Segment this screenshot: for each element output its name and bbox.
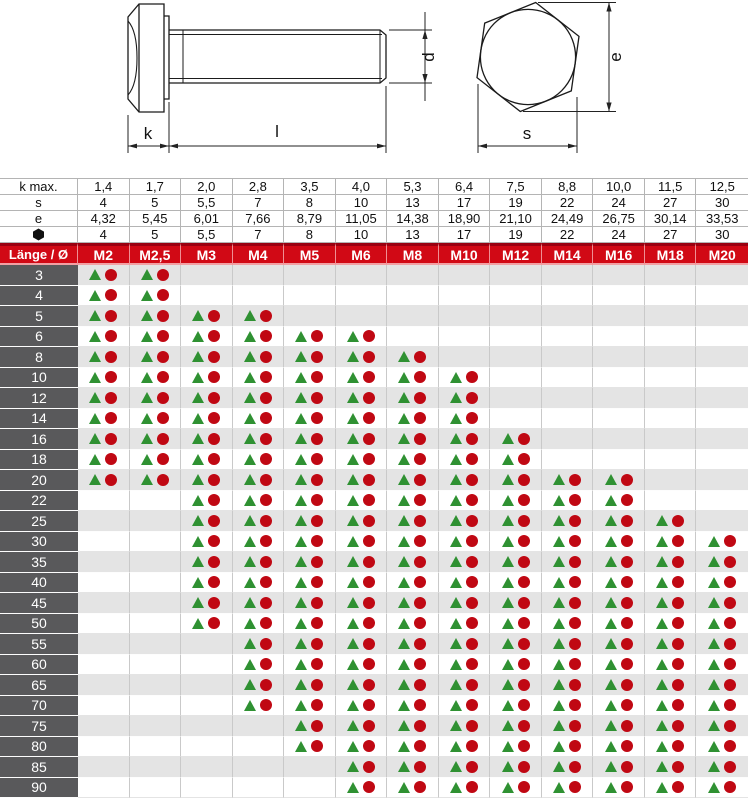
spec-value: 10,0 bbox=[593, 179, 645, 195]
availability-cell bbox=[130, 614, 182, 635]
circle-icon bbox=[621, 494, 633, 506]
circle-icon bbox=[414, 494, 426, 506]
availability-cell bbox=[387, 306, 439, 327]
availability-cell bbox=[233, 532, 285, 553]
availability-markers bbox=[502, 453, 530, 465]
availability-markers bbox=[502, 597, 530, 609]
triangle-icon bbox=[295, 638, 307, 649]
triangle-icon bbox=[141, 413, 153, 424]
availability-markers bbox=[295, 658, 323, 670]
length-label: 60 bbox=[0, 655, 78, 676]
availability-markers bbox=[244, 576, 272, 588]
availability-markers bbox=[553, 761, 581, 773]
availability-cell bbox=[593, 716, 645, 737]
bolt-head-front-view bbox=[477, 3, 579, 112]
circle-icon bbox=[518, 720, 530, 732]
spec-value: 10 bbox=[336, 195, 388, 211]
availability-markers bbox=[656, 658, 684, 670]
triangle-icon bbox=[502, 659, 514, 670]
availability-cell bbox=[542, 778, 594, 798]
spec-value: 24 bbox=[593, 195, 645, 211]
availability-cell bbox=[387, 409, 439, 430]
availability-cell bbox=[284, 306, 336, 327]
availability-cell bbox=[233, 409, 285, 430]
availability-cell bbox=[490, 470, 542, 491]
availability-markers bbox=[295, 720, 323, 732]
availability-markers bbox=[244, 371, 272, 383]
availability-markers bbox=[553, 617, 581, 629]
availability-markers bbox=[398, 781, 426, 793]
availability-markers bbox=[244, 597, 272, 609]
triangle-icon bbox=[244, 597, 256, 608]
availability-cell bbox=[593, 573, 645, 594]
circle-icon bbox=[672, 597, 684, 609]
availability-cell bbox=[696, 634, 748, 655]
availability-cell bbox=[593, 368, 645, 389]
availability-cell bbox=[284, 347, 336, 368]
circle-icon bbox=[621, 761, 633, 773]
length-label: 40 bbox=[0, 573, 78, 594]
triangle-icon bbox=[708, 700, 720, 711]
length-label: 22 bbox=[0, 491, 78, 512]
availability-cell bbox=[542, 593, 594, 614]
availability-cell bbox=[439, 265, 491, 286]
availability-cell bbox=[645, 429, 697, 450]
circle-icon bbox=[724, 658, 736, 670]
circle-icon bbox=[672, 679, 684, 691]
circle-icon bbox=[724, 740, 736, 752]
availability-cell bbox=[439, 286, 491, 307]
triangle-icon bbox=[347, 720, 359, 731]
availability-cell bbox=[490, 388, 542, 409]
availability-cell bbox=[593, 696, 645, 717]
availability-markers bbox=[450, 433, 478, 445]
availability-cell bbox=[593, 593, 645, 614]
availability-cell bbox=[233, 368, 285, 389]
spec-row-label bbox=[0, 227, 78, 243]
circle-icon bbox=[724, 535, 736, 547]
dimension-lines bbox=[128, 3, 616, 154]
circle-icon bbox=[363, 412, 375, 424]
availability-markers bbox=[605, 535, 633, 547]
availability-cell bbox=[336, 368, 388, 389]
availability-markers bbox=[605, 597, 633, 609]
availability-cell bbox=[387, 573, 439, 594]
availability-cell bbox=[490, 306, 542, 327]
availability-cell bbox=[696, 593, 748, 614]
availability-markers bbox=[347, 556, 375, 568]
length-label: 70 bbox=[0, 696, 78, 717]
availability-markers bbox=[656, 576, 684, 588]
spec-value: 30,14 bbox=[645, 211, 697, 227]
datasheet-page: k l d e s k max.1,41,72,02,83,54,05,36,4… bbox=[0, 0, 748, 798]
availability-cell bbox=[645, 532, 697, 553]
triangle-icon bbox=[605, 700, 617, 711]
triangle-icon bbox=[192, 597, 204, 608]
availability-cell bbox=[593, 778, 645, 798]
availability-cell bbox=[233, 593, 285, 614]
availability-markers bbox=[398, 617, 426, 629]
availability-cell bbox=[593, 614, 645, 635]
availability-cell bbox=[130, 778, 182, 798]
circle-icon bbox=[724, 617, 736, 629]
triangle-icon bbox=[708, 679, 720, 690]
triangle-icon bbox=[192, 515, 204, 526]
availability-markers bbox=[553, 740, 581, 752]
availability-cell bbox=[439, 696, 491, 717]
triangle-icon bbox=[553, 782, 565, 793]
circle-icon bbox=[208, 453, 220, 465]
availability-markers bbox=[502, 638, 530, 650]
availability-cell bbox=[336, 306, 388, 327]
triangle-icon bbox=[605, 597, 617, 608]
availability-cell bbox=[490, 716, 542, 737]
dim-label-e: e bbox=[606, 52, 625, 61]
availability-markers bbox=[244, 494, 272, 506]
availability-markers bbox=[605, 699, 633, 711]
spec-value: 11,05 bbox=[336, 211, 388, 227]
circle-icon bbox=[311, 494, 323, 506]
availability-cell bbox=[181, 778, 233, 798]
availability-cell bbox=[233, 778, 285, 798]
availability-cell bbox=[490, 532, 542, 553]
triangle-icon bbox=[450, 782, 462, 793]
circle-icon bbox=[569, 679, 581, 691]
circle-icon bbox=[311, 351, 323, 363]
availability-markers bbox=[244, 515, 272, 527]
availability-markers bbox=[450, 658, 478, 670]
availability-cell bbox=[696, 675, 748, 696]
circle-icon bbox=[260, 679, 272, 691]
triangle-icon bbox=[605, 618, 617, 629]
triangle-icon bbox=[295, 536, 307, 547]
availability-cell bbox=[233, 737, 285, 758]
availability-cell bbox=[593, 265, 645, 286]
triangle-icon bbox=[141, 331, 153, 342]
availability-cell bbox=[696, 552, 748, 573]
availability-cell bbox=[78, 347, 130, 368]
circle-icon bbox=[518, 515, 530, 527]
availability-cell bbox=[593, 327, 645, 348]
availability-cell bbox=[130, 655, 182, 676]
availability-cell bbox=[336, 511, 388, 532]
triangle-icon bbox=[450, 761, 462, 772]
triangle-icon bbox=[244, 679, 256, 690]
availability-markers bbox=[192, 453, 220, 465]
circle-icon bbox=[414, 699, 426, 711]
triangle-icon bbox=[605, 659, 617, 670]
triangle-icon bbox=[244, 638, 256, 649]
spec-value: 19 bbox=[490, 195, 542, 211]
availability-cell bbox=[439, 737, 491, 758]
availability-markers bbox=[347, 597, 375, 609]
circle-icon bbox=[414, 515, 426, 527]
spec-value: 6,01 bbox=[181, 211, 233, 227]
triangle-icon bbox=[295, 618, 307, 629]
availability-markers bbox=[553, 638, 581, 650]
circle-icon bbox=[208, 617, 220, 629]
availability-markers bbox=[553, 597, 581, 609]
availability-cell bbox=[490, 552, 542, 573]
triangle-icon bbox=[502, 556, 514, 567]
length-label: 10 bbox=[0, 368, 78, 389]
availability-markers bbox=[708, 617, 736, 629]
triangle-icon bbox=[450, 597, 462, 608]
triangle-icon bbox=[502, 433, 514, 444]
triangle-icon bbox=[605, 741, 617, 752]
availability-cell bbox=[696, 347, 748, 368]
availability-markers bbox=[605, 761, 633, 773]
triangle-icon bbox=[295, 474, 307, 485]
availability-markers bbox=[553, 658, 581, 670]
circle-icon bbox=[311, 658, 323, 670]
circle-icon bbox=[414, 556, 426, 568]
availability-cell bbox=[130, 450, 182, 471]
availability-cell bbox=[181, 388, 233, 409]
spec-value: 22 bbox=[542, 227, 594, 243]
availability-cell bbox=[542, 470, 594, 491]
circle-icon bbox=[569, 617, 581, 629]
availability-cell bbox=[593, 388, 645, 409]
spec-value: 4,0 bbox=[336, 179, 388, 195]
triangle-icon bbox=[347, 474, 359, 485]
availability-cell bbox=[233, 675, 285, 696]
availability-cell bbox=[593, 634, 645, 655]
availability-cell bbox=[439, 429, 491, 450]
triangle-icon bbox=[244, 454, 256, 465]
availability-markers bbox=[708, 781, 736, 793]
triangle-icon bbox=[450, 679, 462, 690]
availability-cell bbox=[284, 757, 336, 778]
triangle-icon bbox=[244, 495, 256, 506]
circle-icon bbox=[518, 617, 530, 629]
triangle-icon bbox=[89, 372, 101, 383]
triangle-icon bbox=[605, 679, 617, 690]
availability-cell bbox=[181, 655, 233, 676]
circle-icon bbox=[311, 330, 323, 342]
circle-icon bbox=[363, 535, 375, 547]
triangle-icon bbox=[553, 679, 565, 690]
triangle-icon bbox=[141, 290, 153, 301]
dim-label-k: k bbox=[144, 124, 153, 143]
availability-cell bbox=[490, 327, 542, 348]
availability-markers bbox=[192, 617, 220, 629]
availability-markers bbox=[192, 330, 220, 342]
availability-cell bbox=[336, 675, 388, 696]
availability-cell bbox=[387, 491, 439, 512]
availability-markers bbox=[295, 474, 323, 486]
availability-cell bbox=[387, 614, 439, 635]
circle-icon bbox=[621, 576, 633, 588]
availability-markers bbox=[450, 617, 478, 629]
circle-icon bbox=[466, 453, 478, 465]
availability-cell bbox=[645, 634, 697, 655]
availability-cell bbox=[490, 409, 542, 430]
triangle-icon bbox=[398, 761, 410, 772]
circle-icon bbox=[363, 371, 375, 383]
spec-value: 7,5 bbox=[490, 179, 542, 195]
circle-icon bbox=[414, 535, 426, 547]
triangle-icon bbox=[192, 351, 204, 362]
triangle-icon bbox=[553, 597, 565, 608]
circle-icon bbox=[569, 474, 581, 486]
triangle-icon bbox=[605, 474, 617, 485]
availability-cell bbox=[645, 593, 697, 614]
circle-icon bbox=[621, 699, 633, 711]
availability-cell bbox=[439, 532, 491, 553]
availability-cell bbox=[696, 470, 748, 491]
availability-cell bbox=[181, 470, 233, 491]
availability-cell bbox=[439, 634, 491, 655]
circle-icon bbox=[311, 515, 323, 527]
circle-icon bbox=[672, 617, 684, 629]
availability-cell bbox=[284, 429, 336, 450]
availability-cell bbox=[233, 573, 285, 594]
availability-cell bbox=[696, 696, 748, 717]
availability-markers bbox=[347, 781, 375, 793]
circle-icon bbox=[518, 494, 530, 506]
triangle-icon bbox=[398, 597, 410, 608]
triangle-icon bbox=[347, 536, 359, 547]
circle-icon bbox=[672, 658, 684, 670]
circle-icon bbox=[363, 720, 375, 732]
availability-cell bbox=[645, 778, 697, 798]
availability-cell bbox=[130, 388, 182, 409]
triangle-icon bbox=[605, 782, 617, 793]
availability-markers bbox=[502, 658, 530, 670]
length-label: 8 bbox=[0, 347, 78, 368]
circle-icon bbox=[105, 289, 117, 301]
circle-icon bbox=[518, 699, 530, 711]
circle-icon bbox=[208, 392, 220, 404]
circle-icon bbox=[311, 617, 323, 629]
spec-value: 26,75 bbox=[593, 211, 645, 227]
availability-cell bbox=[233, 429, 285, 450]
availability-cell bbox=[181, 265, 233, 286]
availability-cell bbox=[387, 511, 439, 532]
availability-cell bbox=[336, 696, 388, 717]
availability-cell bbox=[284, 470, 336, 491]
availability-cell bbox=[130, 634, 182, 655]
availability-markers bbox=[244, 453, 272, 465]
availability-cell bbox=[645, 470, 697, 491]
availability-markers bbox=[347, 535, 375, 547]
availability-cell bbox=[284, 696, 336, 717]
availability-markers bbox=[553, 720, 581, 732]
availability-markers bbox=[141, 453, 169, 465]
availability-markers bbox=[398, 576, 426, 588]
triangle-icon bbox=[398, 413, 410, 424]
circle-icon bbox=[311, 412, 323, 424]
triangle-icon bbox=[398, 556, 410, 567]
spec-value: 8 bbox=[284, 227, 336, 243]
availability-cell bbox=[78, 655, 130, 676]
availability-markers bbox=[605, 556, 633, 568]
triangle-icon bbox=[244, 413, 256, 424]
availability-markers bbox=[605, 515, 633, 527]
circle-icon bbox=[466, 371, 478, 383]
circle-icon bbox=[363, 740, 375, 752]
circle-icon bbox=[518, 761, 530, 773]
availability-markers bbox=[502, 556, 530, 568]
availability-markers bbox=[450, 699, 478, 711]
circle-icon bbox=[569, 556, 581, 568]
circle-icon bbox=[208, 494, 220, 506]
size-header: M2,5 bbox=[130, 243, 182, 265]
circle-icon bbox=[466, 761, 478, 773]
availability-cell bbox=[439, 327, 491, 348]
triangle-icon bbox=[192, 392, 204, 403]
availability-cell bbox=[336, 593, 388, 614]
triangle-icon bbox=[656, 638, 668, 649]
triangle-icon bbox=[347, 577, 359, 588]
triangle-icon bbox=[605, 495, 617, 506]
availability-markers bbox=[244, 699, 272, 711]
availability-cell bbox=[490, 757, 542, 778]
availability-cell bbox=[336, 778, 388, 798]
availability-cell bbox=[387, 265, 439, 286]
availability-cell bbox=[284, 409, 336, 430]
circle-icon bbox=[569, 720, 581, 732]
spec-value: 3,5 bbox=[284, 179, 336, 195]
triangle-icon bbox=[502, 495, 514, 506]
availability-cell bbox=[284, 573, 336, 594]
triangle-icon bbox=[450, 536, 462, 547]
availability-cell bbox=[645, 552, 697, 573]
availability-cell bbox=[284, 552, 336, 573]
availability-cell bbox=[542, 409, 594, 430]
availability-cell bbox=[593, 532, 645, 553]
triangle-icon bbox=[553, 659, 565, 670]
hex-bullet-icon bbox=[32, 228, 45, 241]
spec-value: 17 bbox=[439, 227, 491, 243]
availability-cell bbox=[130, 470, 182, 491]
availability-cell bbox=[130, 593, 182, 614]
availability-markers bbox=[708, 658, 736, 670]
availability-markers bbox=[347, 412, 375, 424]
availability-cell bbox=[78, 634, 130, 655]
availability-cell bbox=[336, 265, 388, 286]
triangle-icon bbox=[708, 720, 720, 731]
circle-icon bbox=[621, 658, 633, 670]
triangle-icon bbox=[553, 761, 565, 772]
availability-markers bbox=[192, 556, 220, 568]
triangle-icon bbox=[656, 556, 668, 567]
triangle-icon bbox=[502, 454, 514, 465]
availability-markers bbox=[502, 576, 530, 588]
availability-markers bbox=[553, 781, 581, 793]
availability-markers bbox=[244, 351, 272, 363]
length-label: 18 bbox=[0, 450, 78, 471]
triangle-icon bbox=[89, 454, 101, 465]
availability-cell bbox=[284, 655, 336, 676]
circle-icon bbox=[311, 638, 323, 650]
availability-cell bbox=[696, 511, 748, 532]
availability-markers bbox=[502, 433, 530, 445]
availability-markers bbox=[605, 474, 633, 486]
availability-cell bbox=[130, 327, 182, 348]
availability-cell bbox=[284, 634, 336, 655]
availability-markers bbox=[656, 740, 684, 752]
availability-markers bbox=[244, 412, 272, 424]
triangle-icon bbox=[192, 331, 204, 342]
availability-markers bbox=[708, 597, 736, 609]
size-header: M3 bbox=[181, 243, 233, 265]
availability-cell bbox=[181, 429, 233, 450]
triangle-icon bbox=[244, 474, 256, 485]
circle-icon bbox=[621, 679, 633, 691]
availability-markers bbox=[192, 371, 220, 383]
